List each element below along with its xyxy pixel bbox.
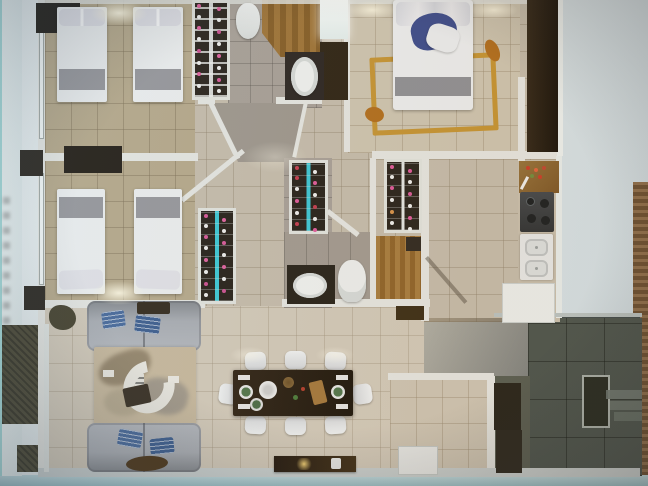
floor-plan-photo <box>0 0 648 486</box>
photo-color-cast <box>0 0 648 486</box>
